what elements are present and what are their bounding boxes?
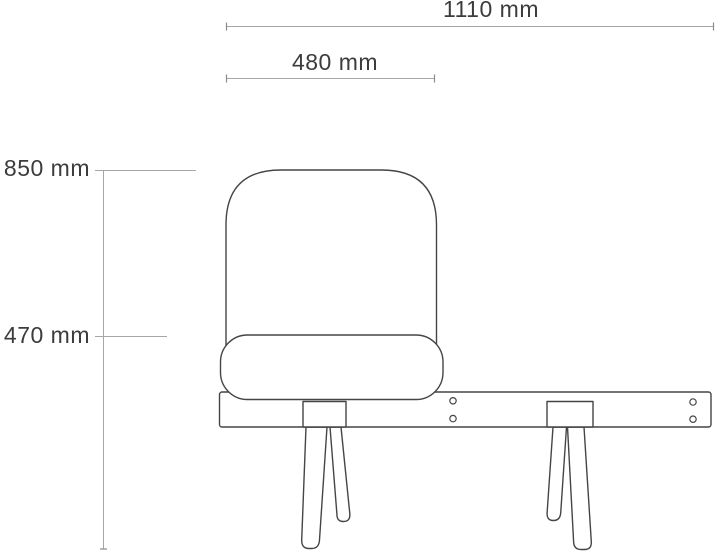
right-leg-bracket (547, 402, 593, 428)
left-leg-bracket (303, 402, 346, 428)
screw-hole (690, 416, 696, 422)
right-front-leg (568, 427, 592, 550)
screw-hole (690, 399, 696, 405)
label-seat-width: 480 mm (292, 50, 378, 75)
label-total-width: 1110 mm (443, 0, 539, 22)
right-rear-leg (547, 427, 566, 521)
chair-outline (220, 170, 712, 550)
backrest-outline (226, 170, 437, 348)
left-front-leg (302, 427, 327, 549)
label-back-height: 850 mm (0, 156, 90, 181)
label-seat-height: 470 mm (0, 323, 90, 348)
screw-hole (450, 415, 456, 421)
seat-cushion (221, 335, 444, 400)
screw-hole (450, 398, 456, 404)
dimension-drawing: 1110 mm 480 mm 850 mm 470 mm (0, 0, 716, 553)
chair-drawing-svg (0, 0, 716, 553)
left-rear-leg (330, 427, 350, 522)
